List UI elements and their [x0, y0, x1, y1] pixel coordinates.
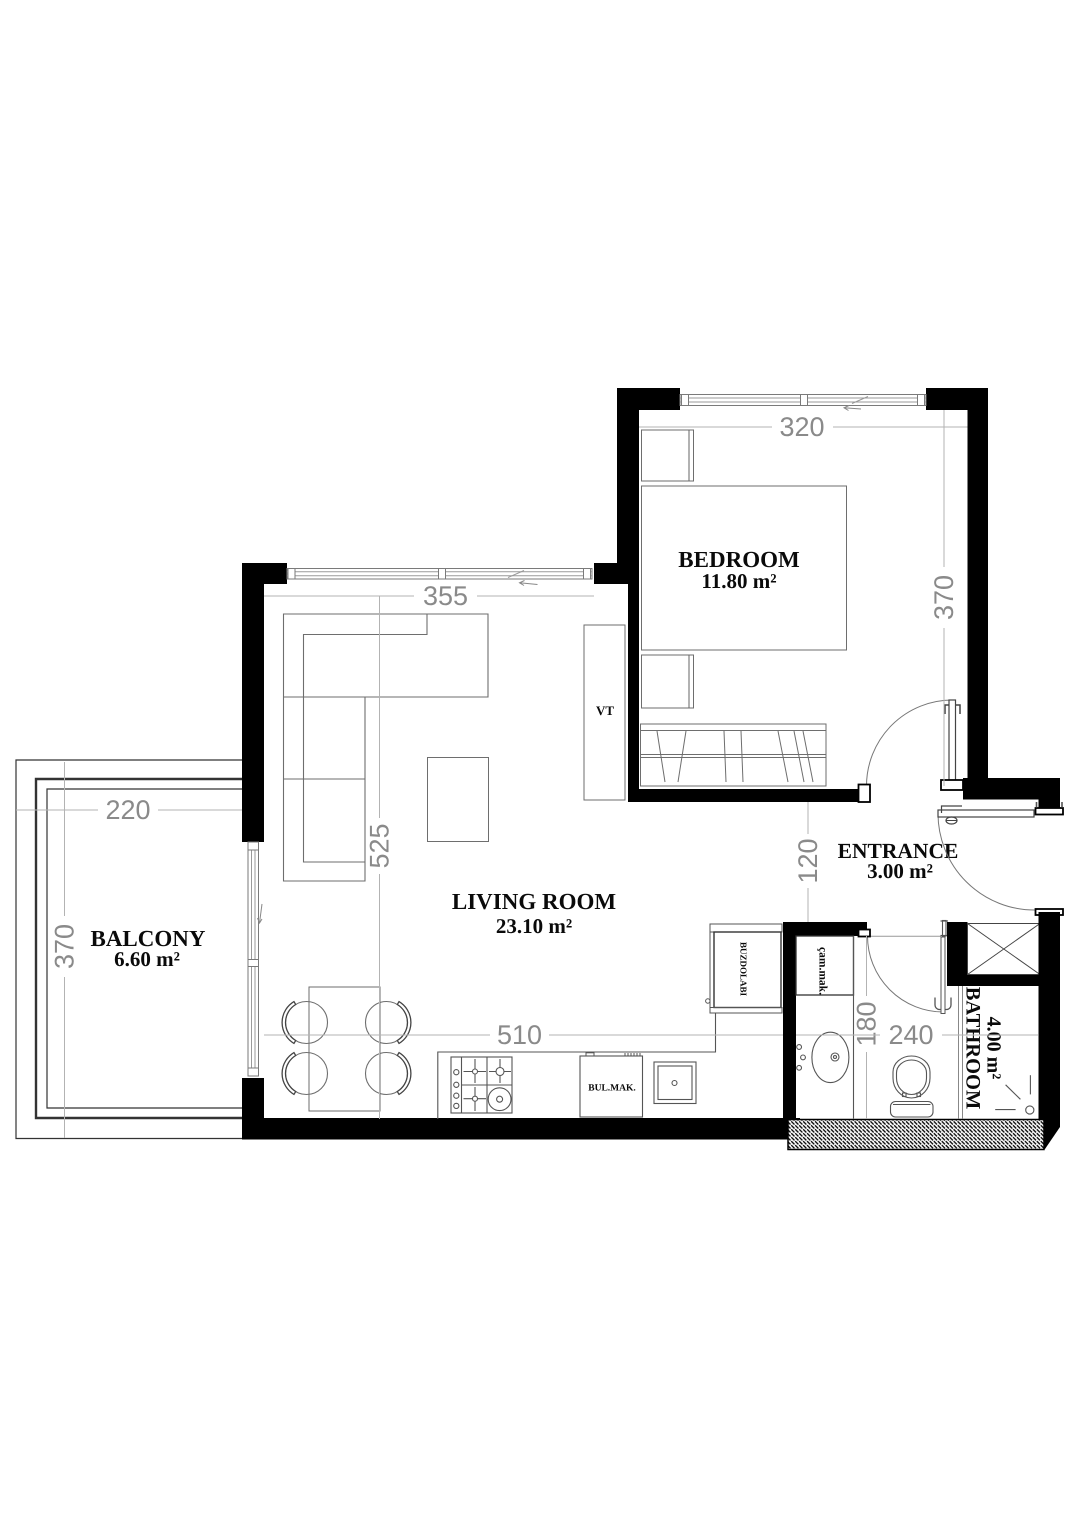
svg-text:180: 180 — [852, 1001, 882, 1046]
svg-text:3.00 m²: 3.00 m² — [867, 859, 933, 883]
svg-text:23.10 m²: 23.10 m² — [496, 914, 572, 938]
svg-text:525: 525 — [365, 823, 395, 868]
svg-text:BUZDOLABI: BUZDOLABI — [739, 942, 749, 997]
svg-text:355: 355 — [423, 581, 468, 611]
svg-text:çam.mak.: çam.mak. — [817, 947, 829, 995]
svg-text:220: 220 — [105, 795, 150, 825]
svg-text:BATHROOM: BATHROOM — [962, 987, 984, 1110]
svg-text:120: 120 — [793, 838, 823, 883]
svg-text:370: 370 — [50, 924, 80, 969]
svg-text:BUL.MAK.: BUL.MAK. — [588, 1084, 636, 1094]
svg-text:6.60 m²: 6.60 m² — [114, 947, 180, 971]
svg-text:370: 370 — [929, 575, 959, 620]
svg-text:VT: VT — [596, 703, 614, 718]
svg-text:LIVING ROOM: LIVING ROOM — [452, 889, 616, 914]
svg-text:11.80 m²: 11.80 m² — [701, 569, 776, 593]
svg-text:320: 320 — [779, 412, 824, 442]
svg-text:240: 240 — [888, 1020, 933, 1050]
svg-text:4.00 m²: 4.00 m² — [983, 1017, 1005, 1080]
svg-text:510: 510 — [497, 1020, 542, 1050]
